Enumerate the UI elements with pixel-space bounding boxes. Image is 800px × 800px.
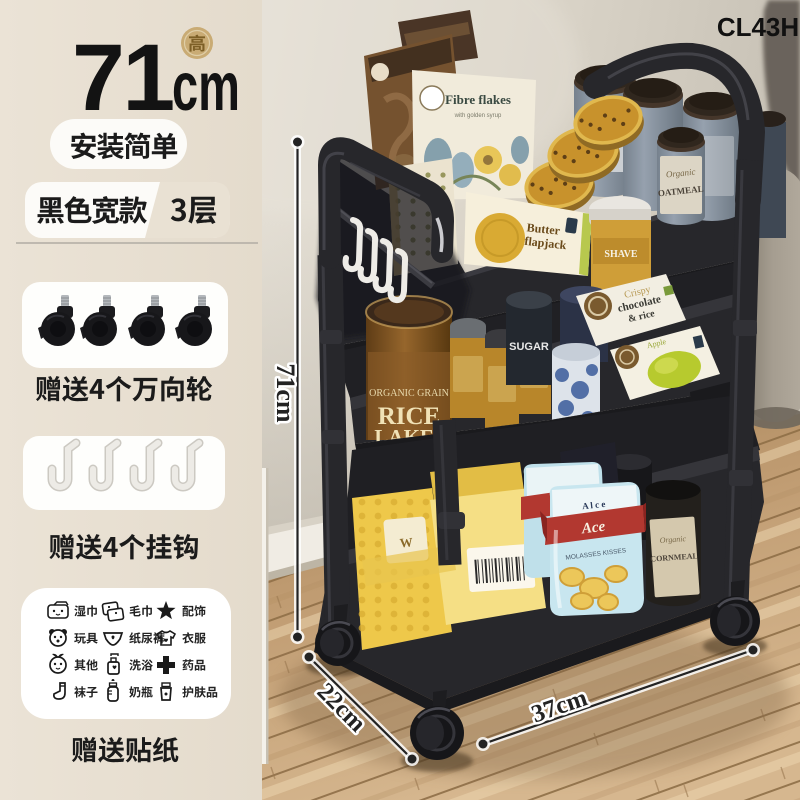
svg-text:W: W xyxy=(399,534,413,550)
svg-text:71: 71 xyxy=(72,25,173,131)
svg-text:with golden syrup: with golden syrup xyxy=(454,113,502,119)
svg-text:CL43H: CL43H xyxy=(717,12,799,42)
svg-text:Fibre flakes: Fibre flakes xyxy=(445,92,511,107)
svg-text:cm: cm xyxy=(172,48,240,125)
svg-text:SUGAR: SUGAR xyxy=(509,341,549,353)
svg-text:SHAVE: SHAVE xyxy=(604,249,637,260)
svg-text:ORGANIC GRAIN: ORGANIC GRAIN xyxy=(369,388,449,399)
svg-text:71cm: 71cm xyxy=(271,363,300,423)
svg-text:Organic: Organic xyxy=(659,534,686,545)
svg-text:Ace: Ace xyxy=(580,519,606,538)
